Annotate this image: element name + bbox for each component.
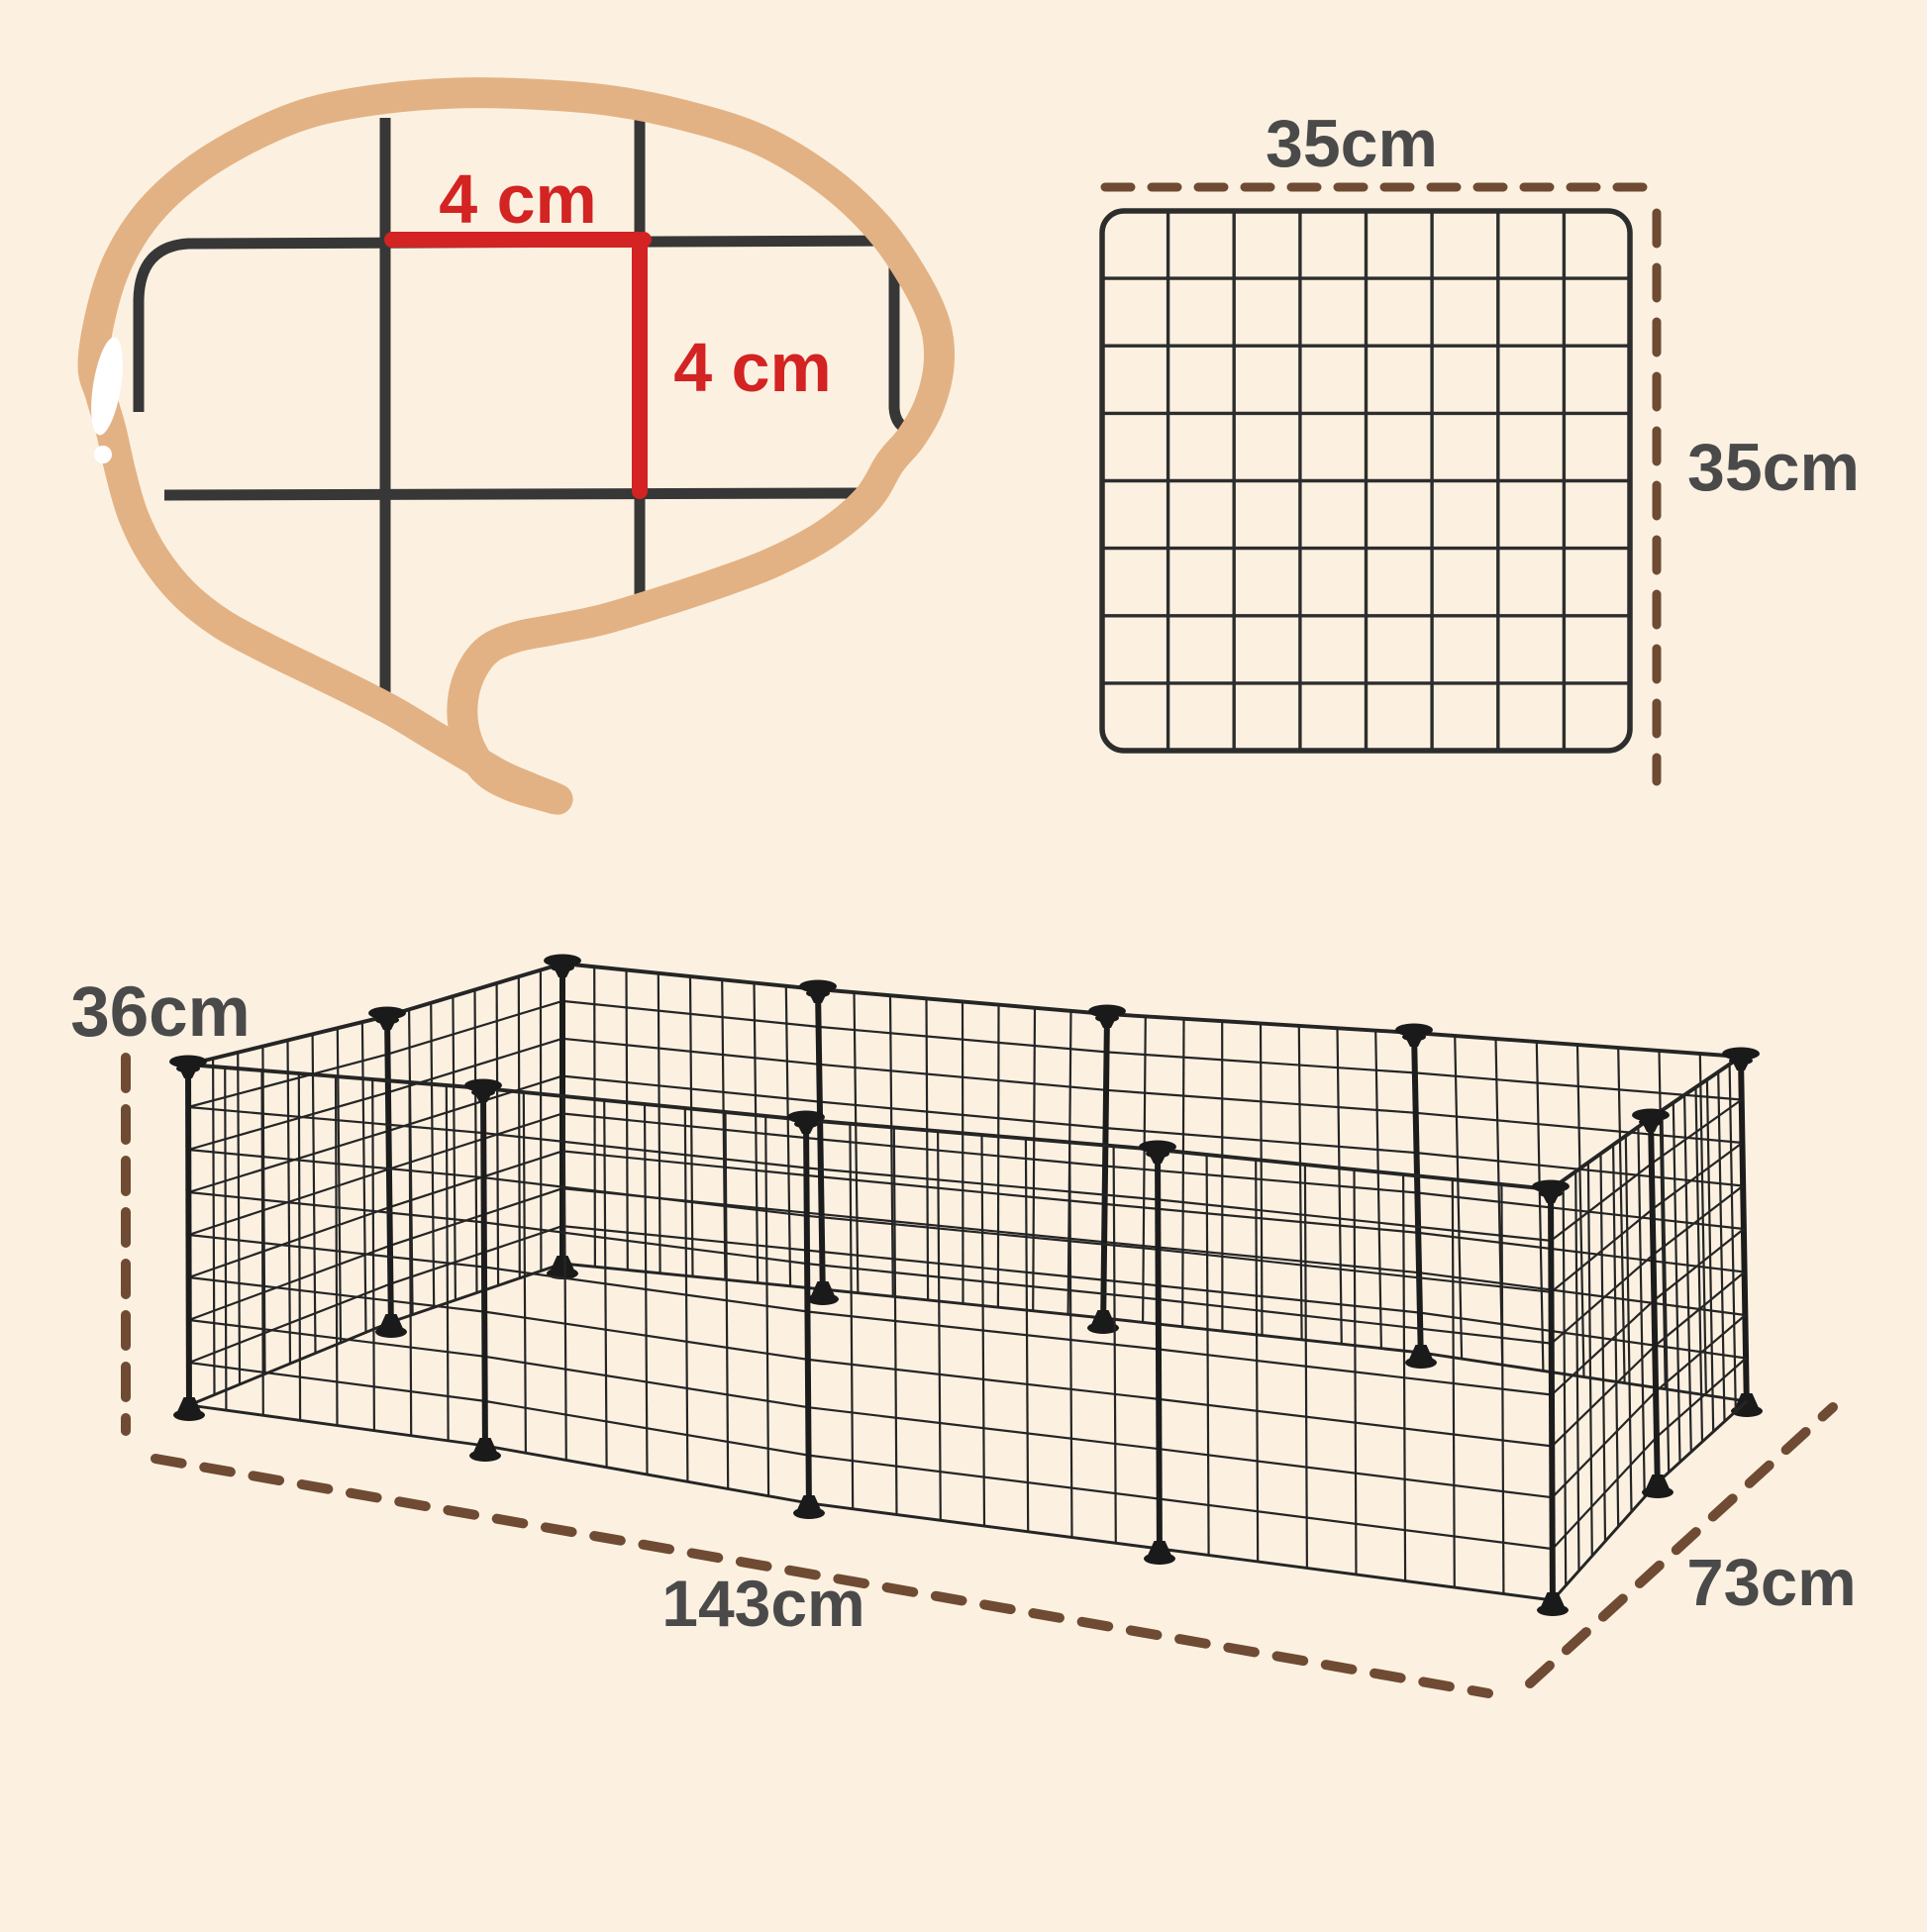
svg-text:4 cm: 4 cm: [439, 160, 597, 238]
svg-text:73cm: 73cm: [1686, 1546, 1856, 1620]
svg-text:35cm: 35cm: [1687, 430, 1860, 505]
svg-text:36cm: 36cm: [70, 973, 251, 1052]
svg-text:143cm: 143cm: [661, 1567, 865, 1640]
svg-text:4 cm: 4 cm: [673, 329, 832, 406]
svg-text:35cm: 35cm: [1266, 106, 1438, 181]
